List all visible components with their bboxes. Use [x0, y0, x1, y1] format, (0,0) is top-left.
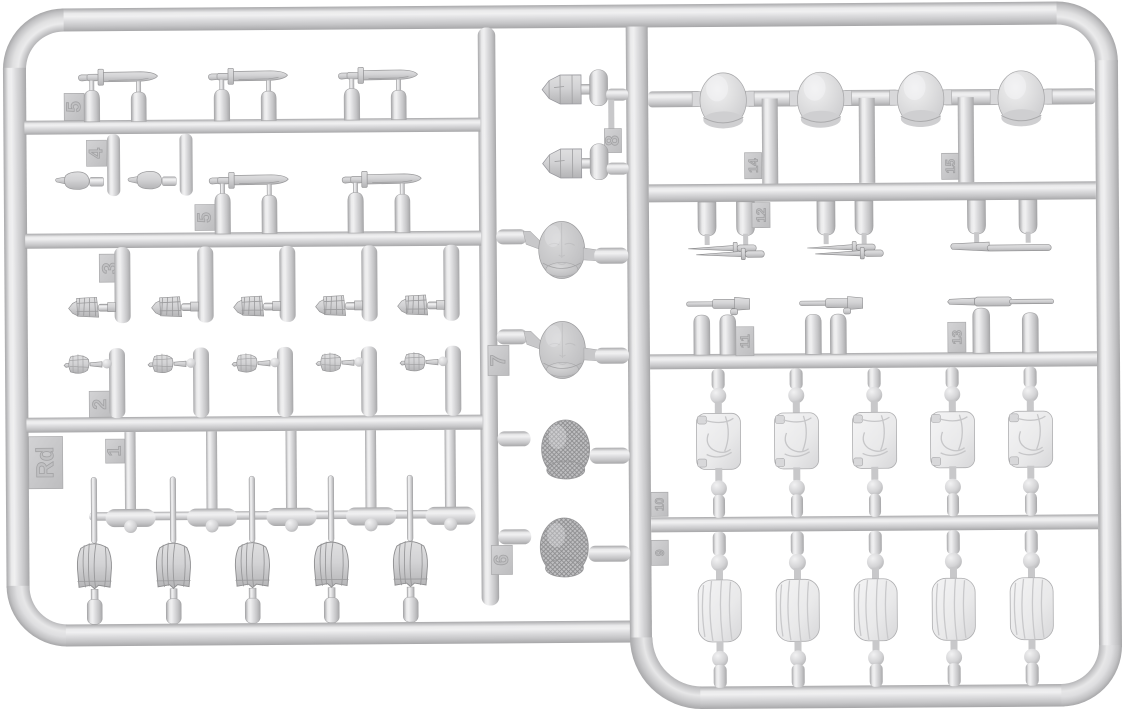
svg-text:15: 15 — [943, 159, 958, 174]
svg-text:4: 4 — [86, 147, 107, 158]
svg-text:12: 12 — [753, 208, 768, 223]
svg-text:7: 7 — [487, 355, 510, 367]
svg-text:5: 5 — [63, 101, 85, 112]
svg-text:9: 9 — [653, 549, 667, 556]
svg-text:5: 5 — [194, 212, 215, 223]
svg-text:10: 10 — [652, 497, 666, 511]
svg-text:Rd: Rd — [32, 447, 59, 479]
svg-text:6: 6 — [491, 554, 513, 565]
svg-text:13: 13 — [949, 330, 964, 345]
svg-text:2: 2 — [90, 399, 111, 410]
svg-text:8: 8 — [602, 135, 623, 146]
svg-text:14: 14 — [746, 158, 761, 173]
svg-text:11: 11 — [737, 334, 752, 348]
svg-text:1: 1 — [105, 445, 126, 456]
